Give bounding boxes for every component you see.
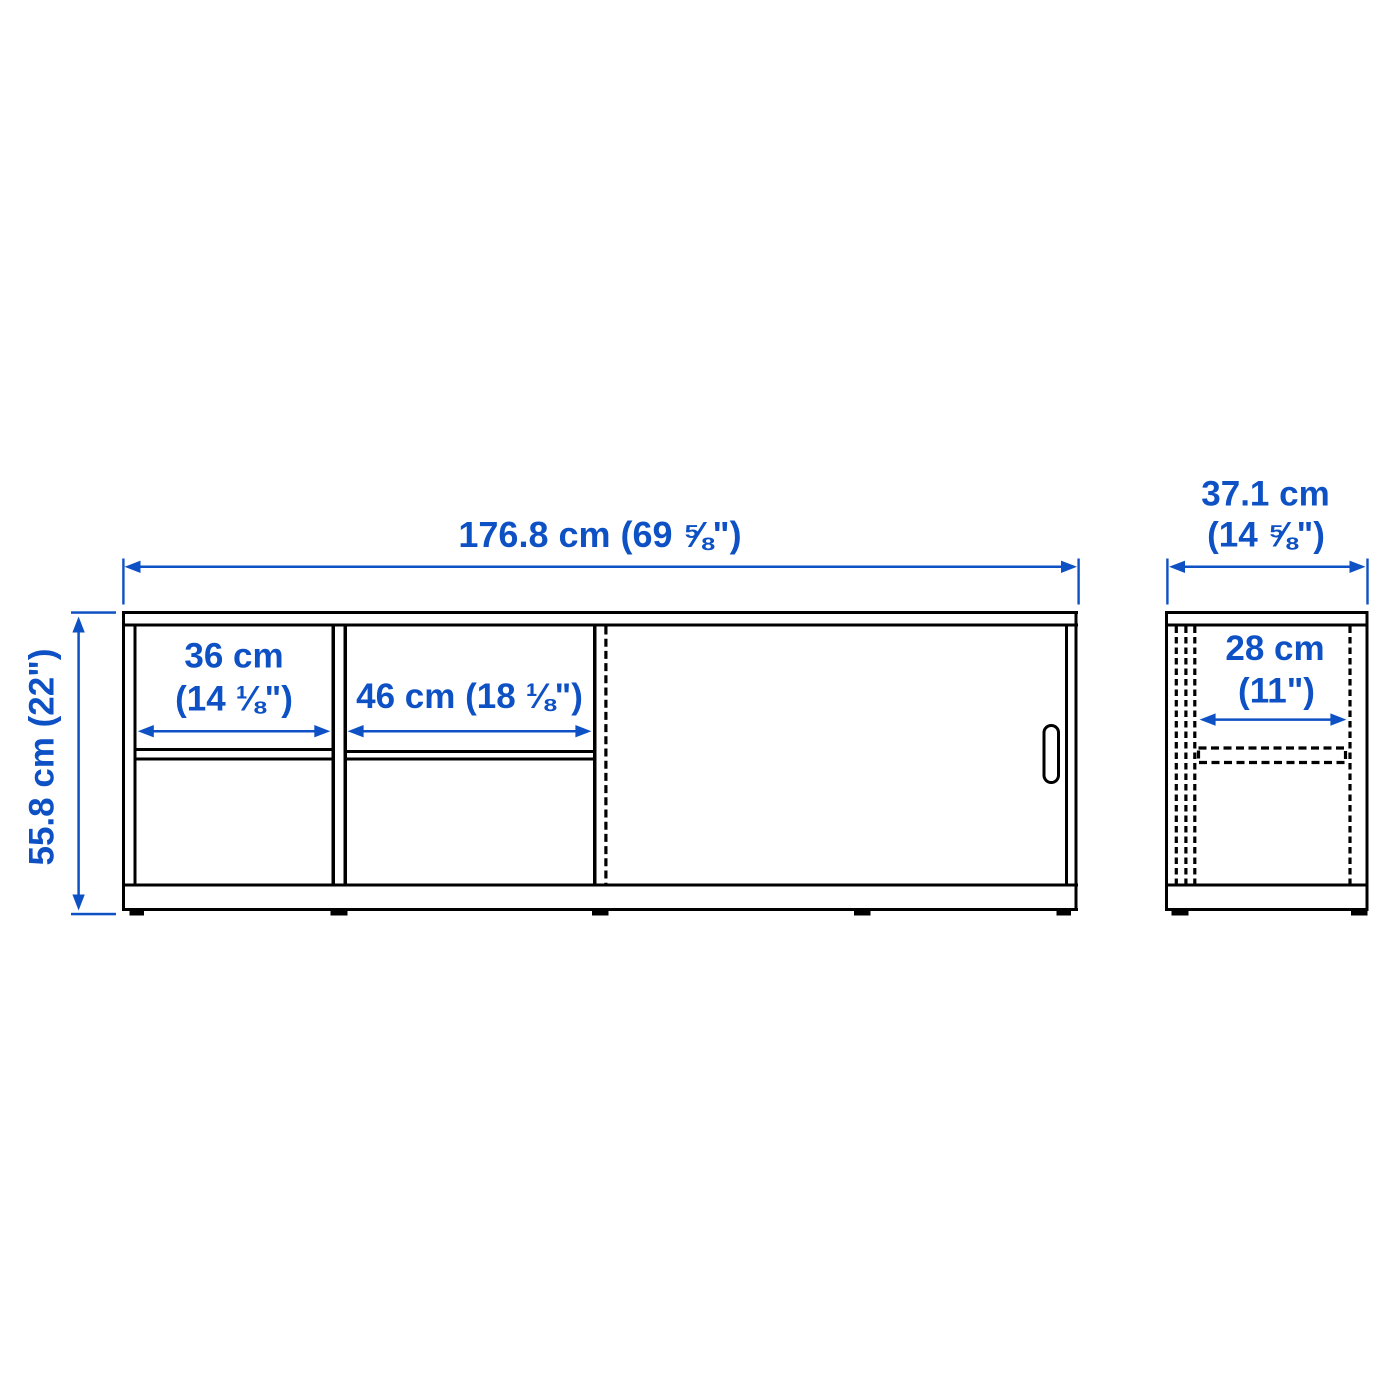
svg-text:55.8 cm (22"): 55.8 cm (22") — [23, 649, 62, 866]
svg-text:36 cm: 36 cm — [184, 637, 283, 676]
svg-text:(14 ⅛"): (14 ⅛") — [175, 680, 293, 719]
svg-text:28 cm: 28 cm — [1225, 629, 1324, 668]
svg-text:(11"): (11") — [1238, 672, 1315, 711]
svg-text:176.8 cm (69 ⅝"): 176.8 cm (69 ⅝") — [458, 514, 741, 555]
svg-text:46 cm (18 ⅛"): 46 cm (18 ⅛") — [356, 677, 583, 716]
svg-text:(14 ⅝"): (14 ⅝") — [1207, 516, 1325, 555]
svg-text:37.1 cm: 37.1 cm — [1201, 475, 1329, 514]
